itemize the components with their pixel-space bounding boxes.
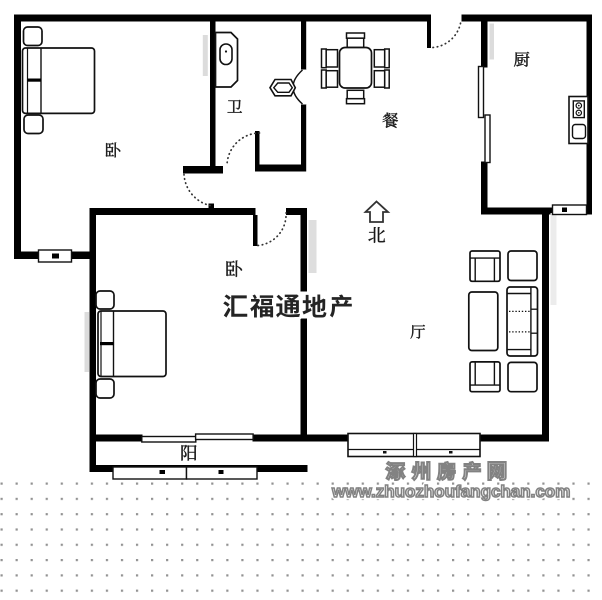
svg-text:www.zhuozhoufangchan.com: www.zhuozhoufangchan.com xyxy=(331,482,570,501)
